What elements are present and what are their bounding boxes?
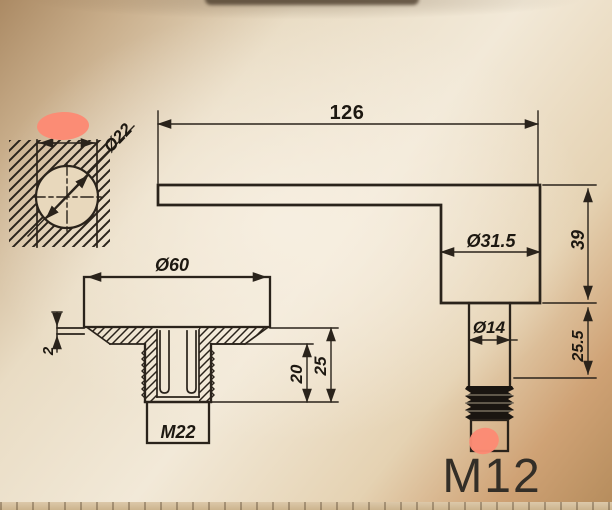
slot-right [187, 331, 196, 393]
glass-hole-detail-view: Ø22 [9, 111, 136, 247]
dim-stud-diameter: Ø14 [473, 318, 506, 337]
dim-arm-length: 126 [330, 102, 365, 124]
slot-left [160, 331, 169, 393]
thread-zigzag-right [211, 350, 214, 398]
technical-drawing-canvas: Ø22 126 Ø31.5 39 Ø14 [0, 0, 612, 510]
dim-body-diameter: Ø31.5 [466, 231, 516, 251]
flange-hatch-right [211, 328, 267, 344]
dim-sleeve-depth: 20 [287, 364, 306, 384]
cropped-footer-strip [0, 502, 612, 510]
drawing-linework: Ø22 126 Ø31.5 39 Ø14 [0, 0, 612, 510]
label-sleeve-thread: M22 [160, 422, 195, 442]
dim-stud-length: 25.5 [570, 329, 587, 362]
flange-hatch-left [88, 328, 145, 344]
sleeve-wall-right [199, 328, 211, 401]
handle-side-view: 126 Ø31.5 39 Ø14 25.5 [158, 102, 596, 503]
label-stud-thread: M12 [442, 450, 541, 503]
stud-thread-section [465, 386, 514, 420]
dim-gasket-thickness: 2 [40, 346, 57, 356]
cap-section-view: Ø60 2 [40, 255, 338, 443]
thread-zigzag-left [142, 350, 145, 398]
dim-cap-diameter: Ø60 [155, 255, 189, 275]
dim-body-height: 39 [568, 230, 588, 250]
highlight-oval-hole-dimension [37, 111, 90, 141]
sleeve-wall-left [145, 328, 157, 401]
cap-outline [84, 277, 270, 327]
dim-sleeve-overall: 25 [311, 356, 330, 376]
